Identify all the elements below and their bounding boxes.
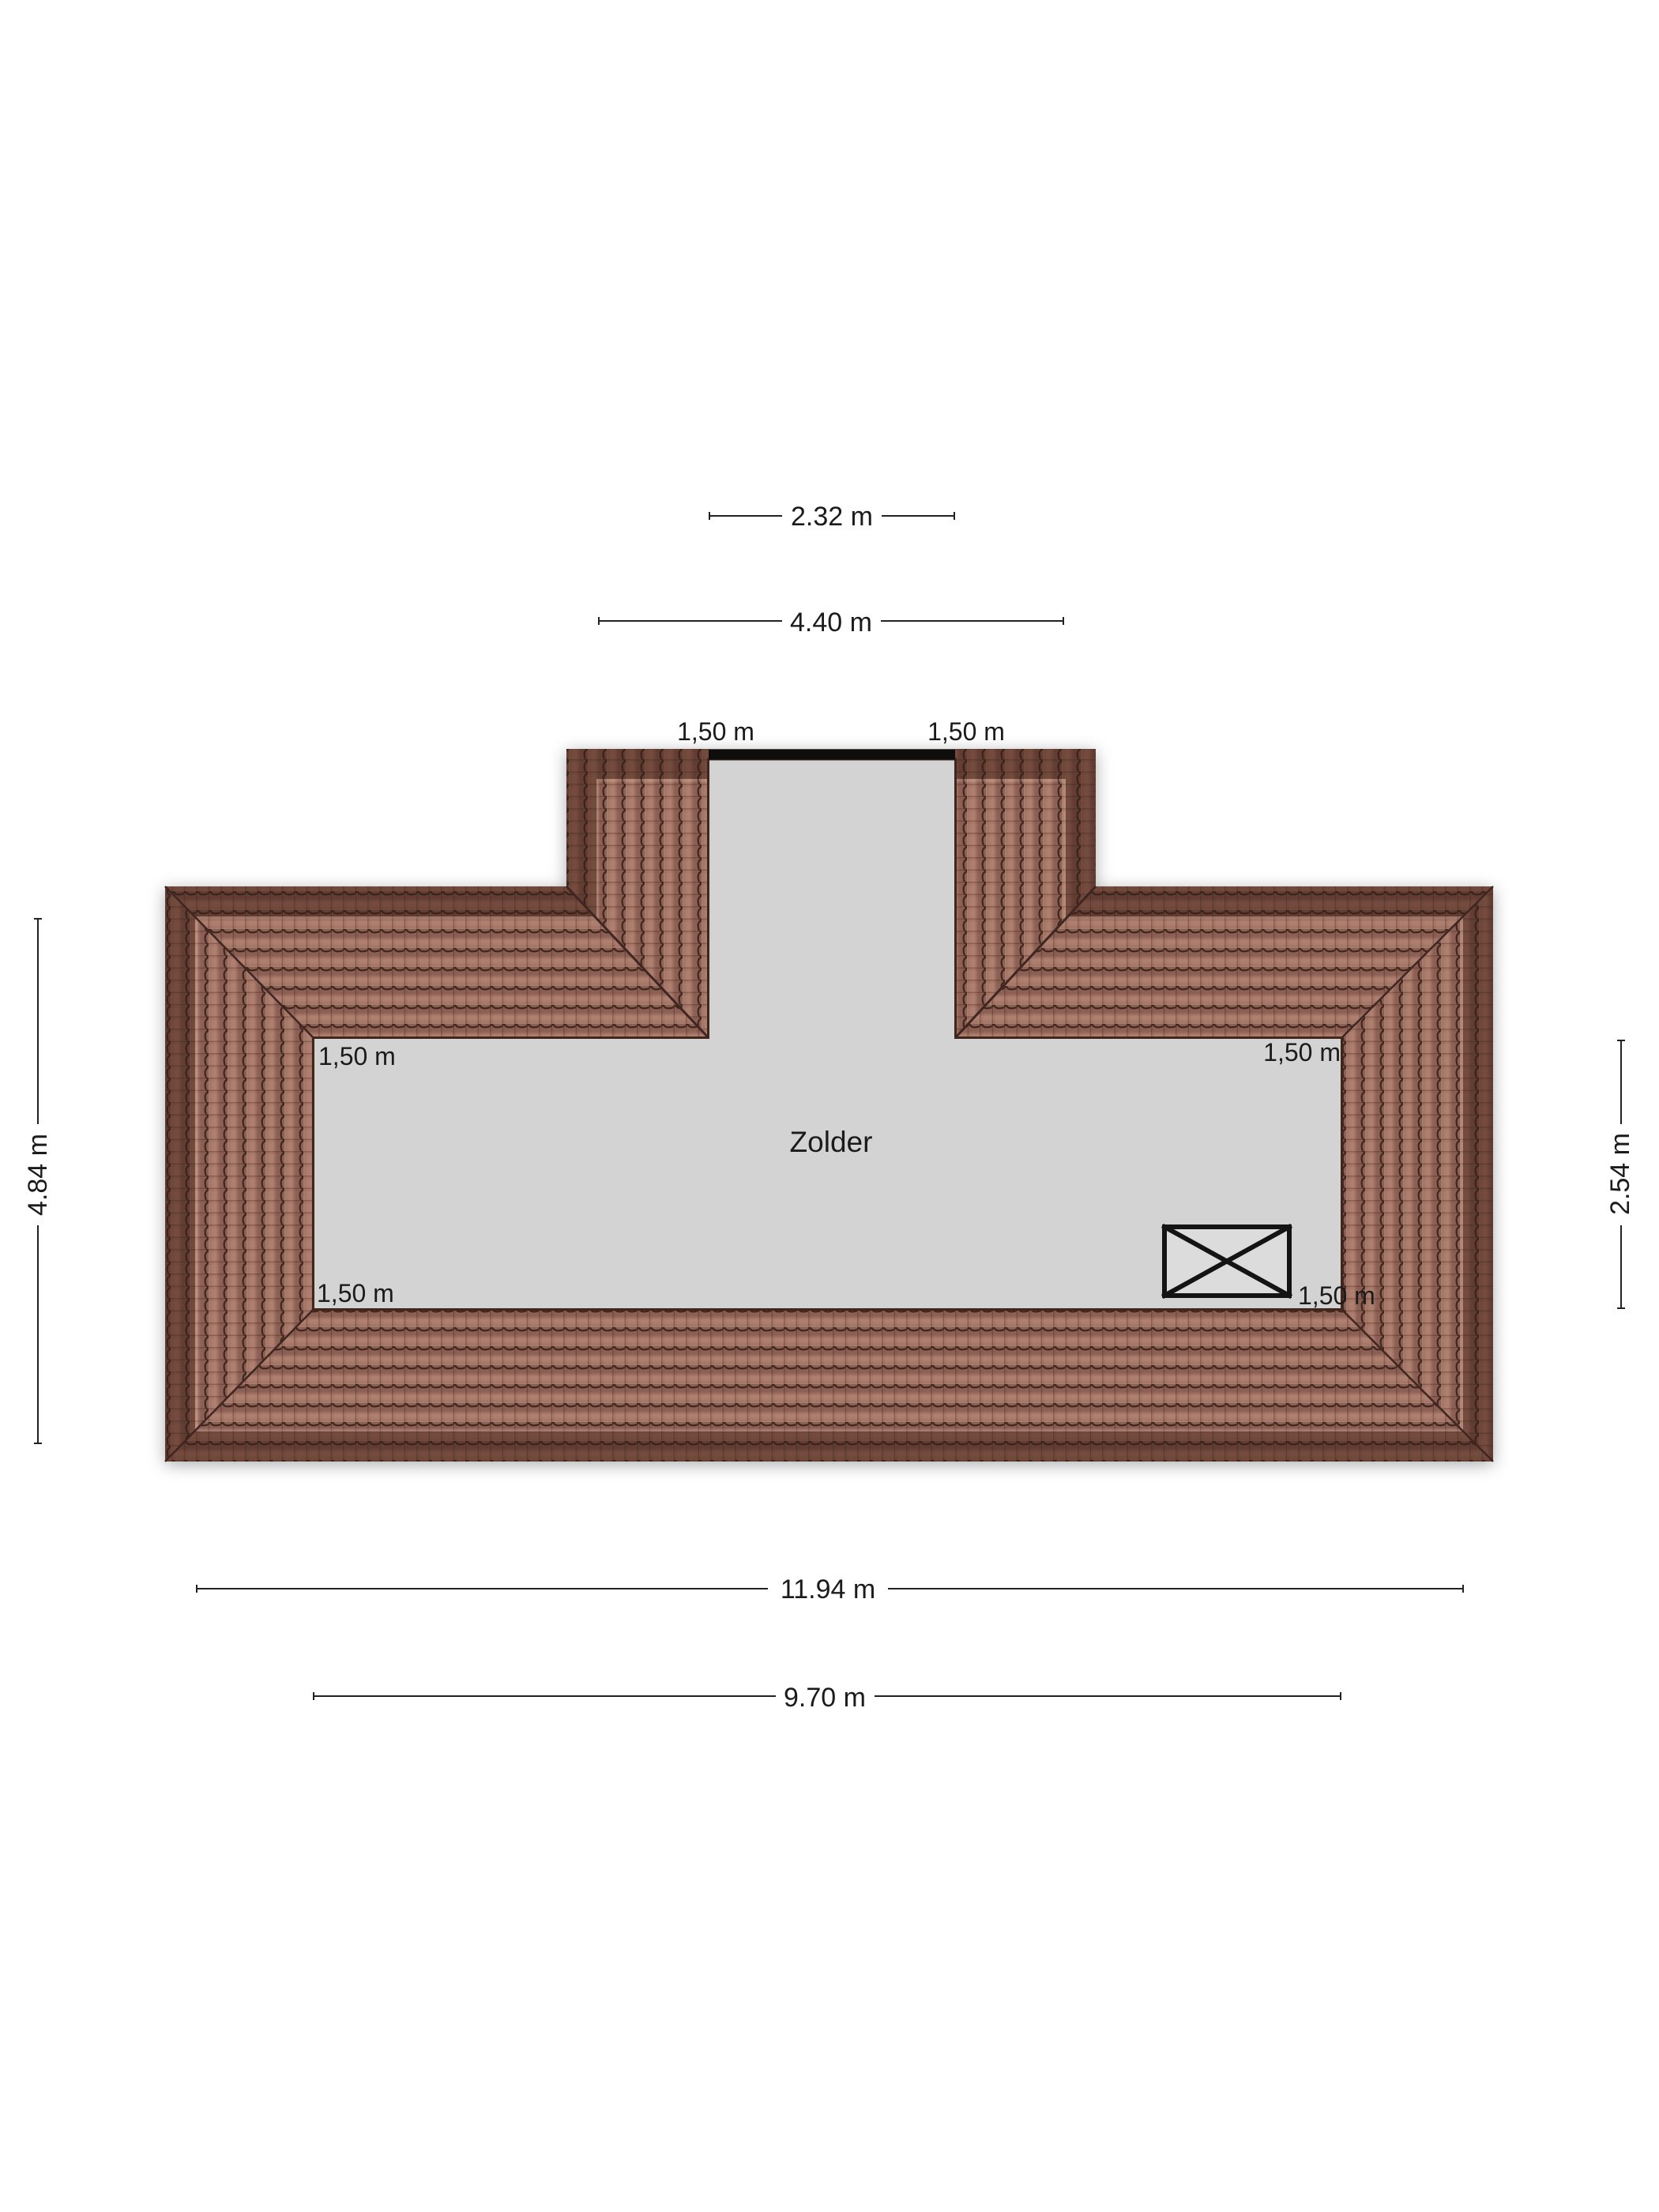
svg-text:1,50 m: 1,50 m — [318, 1042, 396, 1070]
svg-text:9.70 m: 9.70 m — [784, 1683, 866, 1713]
svg-text:4.40 m: 4.40 m — [790, 608, 872, 638]
svg-text:1,50 m: 1,50 m — [927, 717, 1005, 746]
svg-text:11.94 m: 11.94 m — [781, 1574, 875, 1604]
svg-text:Zolder: Zolder — [790, 1126, 873, 1158]
svg-text:1,50 m: 1,50 m — [677, 717, 754, 746]
svg-text:1,50 m: 1,50 m — [1263, 1038, 1341, 1066]
svg-text:2.54 m: 2.54 m — [1605, 1133, 1635, 1215]
svg-text:1,50 m: 1,50 m — [1298, 1281, 1375, 1310]
svg-text:2.32 m: 2.32 m — [791, 502, 873, 532]
svg-text:1,50 m: 1,50 m — [317, 1279, 394, 1307]
svg-text:4.84 m: 4.84 m — [23, 1134, 53, 1216]
